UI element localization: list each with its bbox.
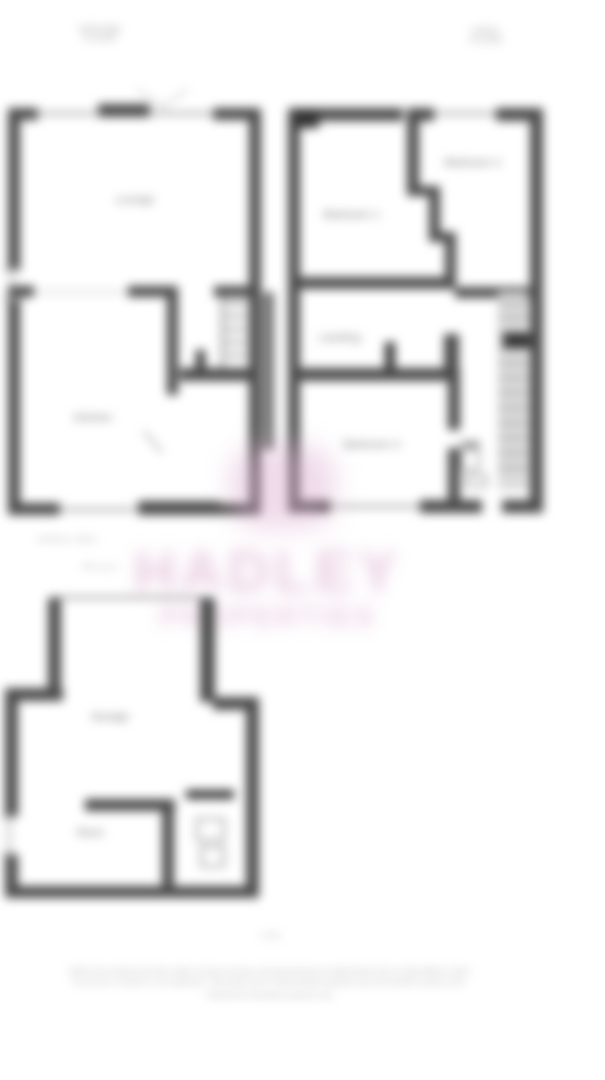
watermark-line2: PROPERTIES	[160, 602, 377, 635]
stair-tread	[498, 422, 528, 424]
wall	[98, 104, 150, 117]
toilet-icon	[461, 448, 480, 471]
window-marker	[50, 596, 210, 599]
room-label-lounge: Lounge	[116, 194, 155, 206]
chimney-block	[295, 110, 319, 128]
stair-tread	[498, 437, 528, 439]
scale-note: 1:100	[260, 932, 280, 941]
first-floor-title-line2: FLOOR	[469, 36, 502, 45]
sink-icon	[466, 474, 487, 487]
wall	[502, 500, 543, 513]
disclaimer-line3: Produced for illustration purposes only.	[206, 993, 335, 1000]
wall	[167, 295, 178, 395]
window-marker	[148, 112, 215, 115]
door-frame	[196, 350, 205, 370]
wall	[48, 598, 61, 695]
window-marker	[2, 853, 18, 856]
wall	[5, 688, 18, 817]
watermark-logo-blob	[230, 446, 335, 528]
toilet-cistern	[461, 441, 480, 448]
wall	[448, 448, 460, 512]
stair-tread	[498, 452, 528, 454]
room-label-bedroom2: Bedroom 2	[445, 157, 502, 169]
stair-tread	[225, 341, 248, 344]
opening-marker	[36, 291, 128, 293]
floorplan-page: GROUND FLOOR FIRST FLOOR	[0, 0, 605, 1080]
disclaimer-line1: Whilst every attempt has been made to en…	[69, 969, 470, 976]
wall	[138, 501, 220, 515]
window-marker	[434, 112, 498, 115]
blurred-layer: GROUND FLOOR FIRST FLOOR	[0, 0, 605, 1080]
wall	[180, 368, 261, 381]
stair-tread	[498, 407, 528, 409]
wall	[200, 598, 215, 702]
stair-tread	[225, 354, 248, 357]
room-label-store: Store	[76, 827, 104, 839]
door-leaf	[143, 431, 163, 454]
toilet-icon	[196, 818, 225, 841]
wall	[407, 108, 419, 192]
wall	[288, 368, 460, 381]
room-label-bedroom1: Bedroom 1	[324, 209, 381, 221]
stair-tread	[225, 302, 248, 305]
door-frame	[186, 790, 234, 799]
wall	[5, 886, 259, 898]
room-label-garage: Garage	[91, 711, 130, 723]
wall	[288, 277, 455, 289]
wall	[8, 300, 20, 515]
wall	[530, 108, 543, 512]
area-note-line1: APPROX. AREA	[37, 536, 96, 545]
stair-tread	[498, 302, 528, 304]
window-marker	[36, 112, 100, 115]
wall	[444, 334, 459, 370]
ground-floor-title-line2: FLOOR	[79, 34, 121, 43]
disclaimer-line2: for any error, omission or mis-statement…	[73, 980, 467, 987]
wall	[418, 108, 434, 121]
window-marker	[58, 508, 140, 511]
window-marker	[330, 505, 422, 508]
stair-tread	[498, 392, 528, 394]
first-floor-title: FIRST FLOOR	[469, 27, 502, 45]
door-frame	[385, 342, 395, 370]
wall	[8, 108, 20, 270]
staircase	[498, 292, 528, 490]
porch-roof-line	[160, 88, 189, 109]
stair-newel	[503, 333, 530, 348]
stair-tread	[225, 328, 248, 331]
wall	[162, 799, 174, 898]
room-label-kitchen: Kitchen	[74, 412, 113, 424]
wall	[448, 368, 460, 430]
stair-tread	[498, 467, 528, 469]
room-label-landing: Landing	[319, 332, 360, 344]
stair-tread	[498, 377, 528, 379]
window-marker	[7, 818, 11, 853]
wall	[8, 286, 34, 297]
area-note-line2: 89.5 sq m	[82, 563, 117, 572]
ground-floor-title: GROUND FLOOR	[79, 25, 121, 43]
wall	[246, 700, 259, 898]
room-label-bedroom3: Bedroom 3	[344, 439, 401, 451]
sink-icon	[200, 846, 225, 867]
stair-tread	[498, 362, 528, 364]
party-wall	[263, 292, 274, 450]
stair-tread	[225, 315, 248, 318]
stair-stringer	[221, 296, 224, 368]
wall	[8, 503, 60, 515]
stair-tread	[498, 317, 528, 319]
